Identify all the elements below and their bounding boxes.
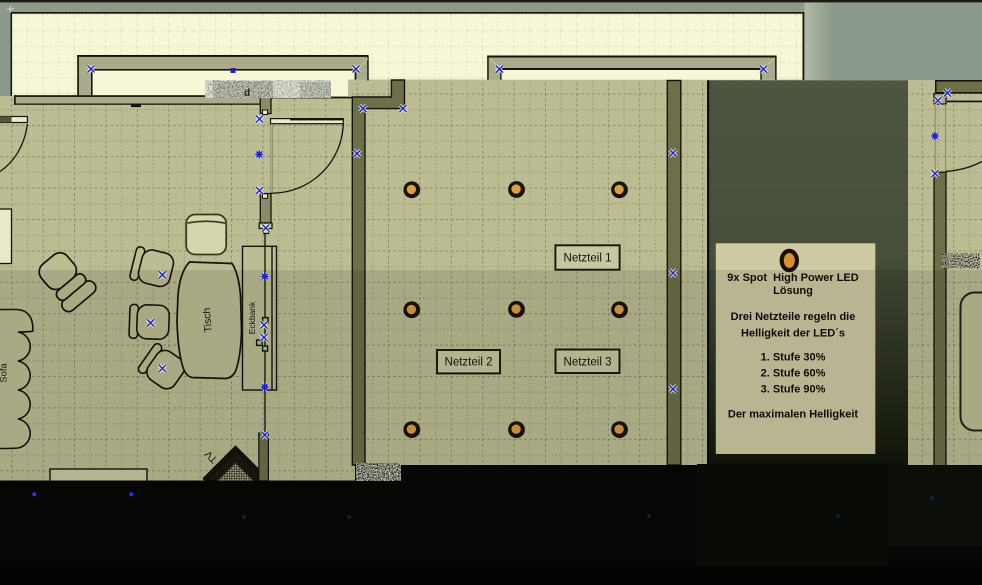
svg-text:Helligkeit der LED´s: Helligkeit der LED´s [741,328,845,340]
svg-text:1. Stufe 30%: 1. Stufe 30% [761,352,826,364]
svg-text:9x Spot High Power LED: 9x Spot High Power LED [727,272,858,284]
svg-text:Drei Netzteile regeln die: Drei Netzteile regeln die [731,311,856,323]
svg-text:2. Stufe 60%: 2. Stufe 60% [761,368,826,380]
svg-text:Netzteil 1: Netzteil 1 [564,252,612,264]
svg-text:Der maximalen Helligkeit: Der maximalen Helligkeit [728,409,859,421]
svg-text:3. Stufe 90%: 3. Stufe 90% [761,384,826,396]
svg-text:Lösung: Lösung [773,285,813,297]
svg-text:d: d [244,88,250,99]
